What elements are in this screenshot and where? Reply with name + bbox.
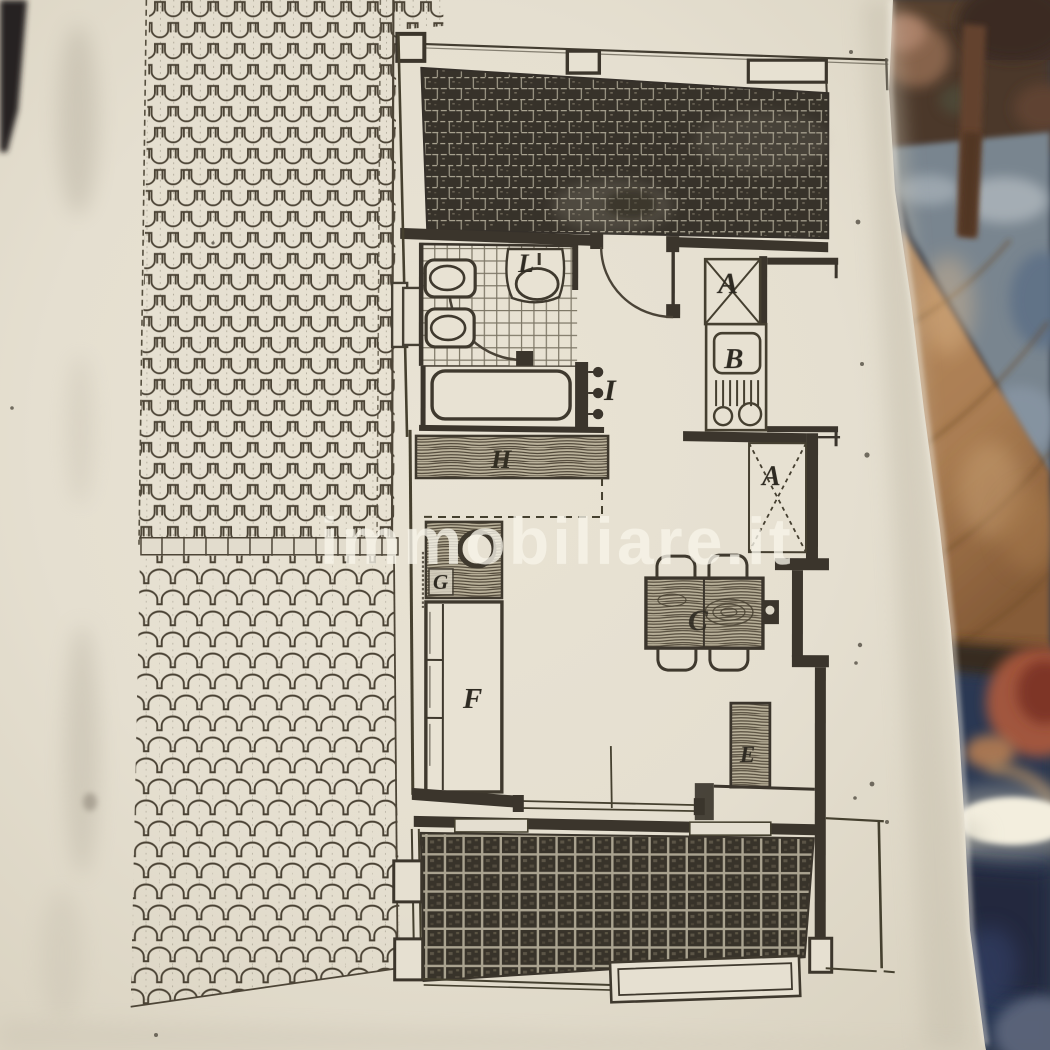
svg-text:F: F xyxy=(462,683,482,715)
svg-text:B: B xyxy=(723,343,743,375)
svg-text:A: A xyxy=(716,267,738,300)
svg-text:E: E xyxy=(739,742,755,767)
svg-text:immobiliare.it: immobiliare.it xyxy=(320,504,794,578)
svg-text:I: I xyxy=(603,374,617,407)
svg-text:L: L xyxy=(517,249,534,278)
svg-text:C: C xyxy=(688,604,709,637)
svg-text:A: A xyxy=(760,461,781,492)
svg-text:H: H xyxy=(490,445,512,474)
